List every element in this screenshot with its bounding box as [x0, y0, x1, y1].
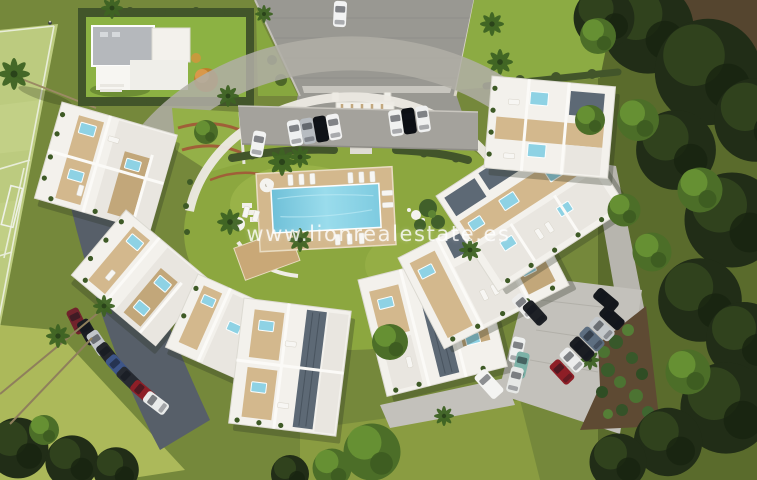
tree	[678, 168, 723, 213]
palm-tree	[480, 12, 504, 36]
villa-house	[92, 26, 190, 92]
palm-tree	[46, 324, 70, 348]
tree	[344, 424, 401, 480]
rooftop-pool	[527, 143, 546, 158]
yellow-bush	[191, 53, 201, 63]
tree	[194, 120, 218, 144]
person-head	[49, 21, 51, 23]
tree	[608, 194, 641, 227]
palm-tree	[255, 5, 273, 23]
white-wing	[152, 28, 190, 62]
palm-tree	[217, 209, 243, 235]
tree	[575, 105, 605, 135]
access-road	[238, 106, 478, 150]
round-table	[266, 180, 274, 188]
tree	[617, 99, 659, 141]
palm-tree	[434, 406, 454, 426]
roof-unit	[112, 32, 120, 37]
steps	[100, 89, 122, 92]
rooftop-pool	[258, 320, 274, 332]
tree	[666, 350, 711, 395]
palm-tree	[289, 146, 311, 168]
apartment-cluster-bottom-left	[228, 298, 356, 444]
roof-unit	[100, 32, 108, 37]
tree	[29, 415, 59, 445]
rooftop-pool	[530, 91, 549, 106]
rooftop-pool	[251, 382, 267, 394]
road-surface	[238, 106, 478, 150]
aerial-render: www.lionrealestate.es	[0, 0, 757, 480]
roof-terrace	[249, 309, 285, 360]
speed-bump	[302, 86, 452, 93]
palm-tree	[459, 239, 481, 261]
tree	[580, 18, 616, 54]
car	[333, 1, 347, 28]
bush	[551, 72, 561, 82]
round-table	[411, 210, 421, 220]
palm-tree	[288, 228, 312, 252]
tree	[633, 233, 672, 272]
palm-tree	[93, 295, 115, 317]
roof-terrace	[242, 367, 278, 420]
palm-tree	[268, 148, 296, 176]
tree	[372, 324, 408, 360]
render-canvas	[0, 0, 757, 480]
palm-tree	[217, 85, 239, 107]
steps	[100, 84, 124, 87]
pool-deck	[256, 167, 396, 252]
lower-wing	[130, 60, 188, 90]
bush	[587, 69, 597, 79]
swimming-pool	[271, 183, 381, 233]
